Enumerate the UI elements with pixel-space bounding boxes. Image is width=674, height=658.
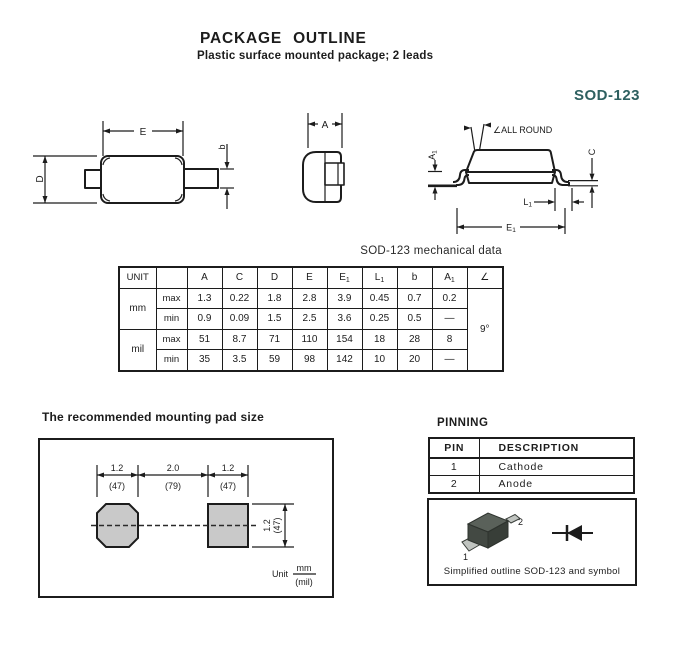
unit-label: Unit: [272, 569, 289, 579]
dimension-l1: L1: [523, 188, 584, 211]
mech-cell: 8: [432, 329, 467, 350]
dimension-e1: E1: [457, 208, 565, 234]
mech-cell: —: [432, 350, 467, 371]
mech-row-mm-min: min 0.9 0.09 1.5 2.5 3.6 0.25 0.5 —: [119, 309, 503, 330]
pin-description: Cathode: [479, 458, 634, 476]
mech-cell: 0.5: [397, 309, 432, 330]
bound-label: min: [156, 309, 187, 330]
right-lead: [184, 169, 218, 188]
mech-cell: 51: [187, 329, 222, 350]
angle-value-cell: 9°: [467, 288, 503, 371]
dim-label-a1: A1: [427, 150, 439, 160]
pin1-number-label: 1: [463, 552, 468, 562]
dim-gap-mm: 2.0: [167, 463, 180, 473]
bound-label: max: [156, 288, 187, 309]
package-body-top-view: [101, 156, 184, 203]
mech-cell: 0.09: [222, 309, 257, 330]
mech-cell: 0.7: [397, 288, 432, 309]
dim-label-e: E: [140, 127, 147, 138]
unit-note: Unit mm (mil): [272, 563, 316, 587]
right-dimension: 1.2 (47): [252, 504, 294, 547]
side-view-drawing: ∠ALL ROUND A1: [420, 108, 670, 238]
mech-col-a: A: [187, 267, 222, 288]
mech-cell: 110: [292, 329, 327, 350]
pinning-title: PINNING: [437, 417, 488, 429]
mech-cell: 98: [292, 350, 327, 371]
package-name: SOD-123: [574, 87, 640, 104]
mech-cell: 0.2: [432, 288, 467, 309]
mech-cell: 1.5: [257, 309, 292, 330]
dim-label-a: A: [322, 120, 329, 131]
dim-label-c: C: [587, 148, 597, 155]
page-subtitle: Plastic surface mounted package; 2 leads: [197, 50, 433, 62]
bound-label: max: [156, 329, 187, 350]
mech-row-mil-max: mil max 51 8.7 71 110 154 18 28 8: [119, 329, 503, 350]
page-title: PACKAGE OUTLINE: [200, 30, 367, 48]
mech-cell: 142: [327, 350, 362, 371]
mech-cell: 3.5: [222, 350, 257, 371]
dim-label-e1: E1: [506, 223, 516, 235]
unit-denominator: (mil): [295, 577, 313, 587]
mech-table-title: SOD-123 mechanical data: [360, 245, 502, 257]
mech-cell: 10: [362, 350, 397, 371]
dimension-e: E: [103, 121, 183, 156]
pin-description: Anode: [479, 476, 634, 494]
package-body-side-view: [466, 150, 555, 183]
dim-left-pad-mm: 1.2: [111, 463, 124, 473]
dim-pad-height-mm: 1.2: [262, 519, 272, 532]
mech-cell: 0.45: [362, 288, 397, 309]
mech-col-c: C: [222, 267, 257, 288]
mech-col-d: D: [257, 267, 292, 288]
dim-right-pad-mil: (47): [220, 481, 236, 491]
end-view-drawing: A: [280, 108, 360, 208]
mech-cell: 2.5: [292, 309, 327, 330]
mech-col-angle: ∠: [467, 267, 503, 288]
mech-cell: 20: [397, 350, 432, 371]
mech-cell: 154: [327, 329, 362, 350]
dimension-a1: A1: [427, 150, 442, 200]
dimension-b: b: [217, 144, 234, 209]
pin-number: 2: [429, 476, 479, 494]
mech-col-l1: L1: [362, 267, 397, 288]
top-view-drawing: E D b: [30, 108, 240, 220]
mech-col-unit: UNIT: [119, 267, 156, 288]
left-lead: [85, 170, 101, 188]
angle-note: ∠ALL ROUND: [493, 125, 553, 135]
mechanical-data-table: UNIT A C D E E1 L1 b A1 ∠ mm max 1.3 0.2…: [118, 266, 504, 372]
mech-col-e1: E1: [327, 267, 362, 288]
pad-drawing-frame: [39, 439, 333, 597]
mech-cell: 0.9: [187, 309, 222, 330]
pin-col-header: PIN: [429, 438, 479, 458]
datasheet-page: PACKAGE OUTLINE Plastic surface mounted …: [0, 0, 674, 658]
dim-label-d: D: [35, 175, 46, 182]
mech-cell: 3.9: [327, 288, 362, 309]
package-3d-view: 2 1: [462, 513, 523, 562]
bound-label: min: [156, 350, 187, 371]
mounting-pad-drawing: 1.2 (47) 2.0 (79) 1.2 (47) 1.2 (47) Unit…: [36, 435, 338, 601]
mounting-pad-title: The recommended mounting pad size: [42, 410, 264, 424]
mech-cell: 35: [187, 350, 222, 371]
top-dimensions: 1.2 (47) 2.0 (79) 1.2 (47): [97, 463, 248, 497]
pinning-table: PIN DESCRIPTION 1 Cathode 2 Anode: [428, 437, 635, 494]
pinning-row-2: 2 Anode: [429, 476, 634, 494]
mech-row-mm-max: mm max 1.3 0.22 1.8 2.8 3.9 0.45 0.7 0.2…: [119, 288, 503, 309]
pin2-number-label: 2: [518, 517, 523, 527]
left-gullwing-lead: [428, 170, 469, 186]
dim-pad-height-mil: (47): [272, 517, 282, 533]
mech-cell: 8.7: [222, 329, 257, 350]
mech-cell: 2.8: [292, 288, 327, 309]
mech-col-e: E: [292, 267, 327, 288]
mech-cell: 0.22: [222, 288, 257, 309]
dim-gap-mil: (79): [165, 481, 181, 491]
mech-col-a1: A1: [432, 267, 467, 288]
outline-caption: Simplified outline SOD-123 and symbol: [429, 566, 635, 577]
mech-cell: 71: [257, 329, 292, 350]
dim-label-l1: L1: [523, 197, 532, 209]
dim-right-pad-mm: 1.2: [222, 463, 235, 473]
description-col-header: DESCRIPTION: [479, 438, 634, 458]
unit-label-mil: mil: [119, 329, 156, 371]
pinning-header-row: PIN DESCRIPTION: [429, 438, 634, 458]
mech-cell: 28: [397, 329, 432, 350]
unit-numerator: mm: [297, 563, 312, 573]
mech-col-bound: [156, 267, 187, 288]
mech-cell: 59: [257, 350, 292, 371]
dim-left-pad-mil: (47): [109, 481, 125, 491]
dim-label-b: b: [217, 144, 227, 149]
unit-label-mm: mm: [119, 288, 156, 329]
pin-number: 1: [429, 458, 479, 476]
dimension-a: A: [308, 113, 342, 148]
diode-symbol: [552, 525, 593, 541]
pinning-row-1: 1 Cathode: [429, 458, 634, 476]
mech-cell: 3.6: [327, 309, 362, 330]
mech-cell: 1.3: [187, 288, 222, 309]
simplified-outline-box: 2 1 Simplified outline SOD-123 and symbo…: [427, 498, 637, 586]
mech-cell: 18: [362, 329, 397, 350]
mech-col-b: b: [397, 267, 432, 288]
mech-cell: —: [432, 309, 467, 330]
mech-header-row: UNIT A C D E E1 L1 b A1 ∠: [119, 267, 503, 288]
anode-triangle: [567, 525, 582, 541]
package-body-end-view: [303, 152, 344, 202]
mech-cell: 0.25: [362, 309, 397, 330]
mech-row-mil-min: min 35 3.5 59 98 142 10 20 —: [119, 350, 503, 371]
dimension-c: C: [587, 148, 597, 208]
mech-cell: 1.8: [257, 288, 292, 309]
